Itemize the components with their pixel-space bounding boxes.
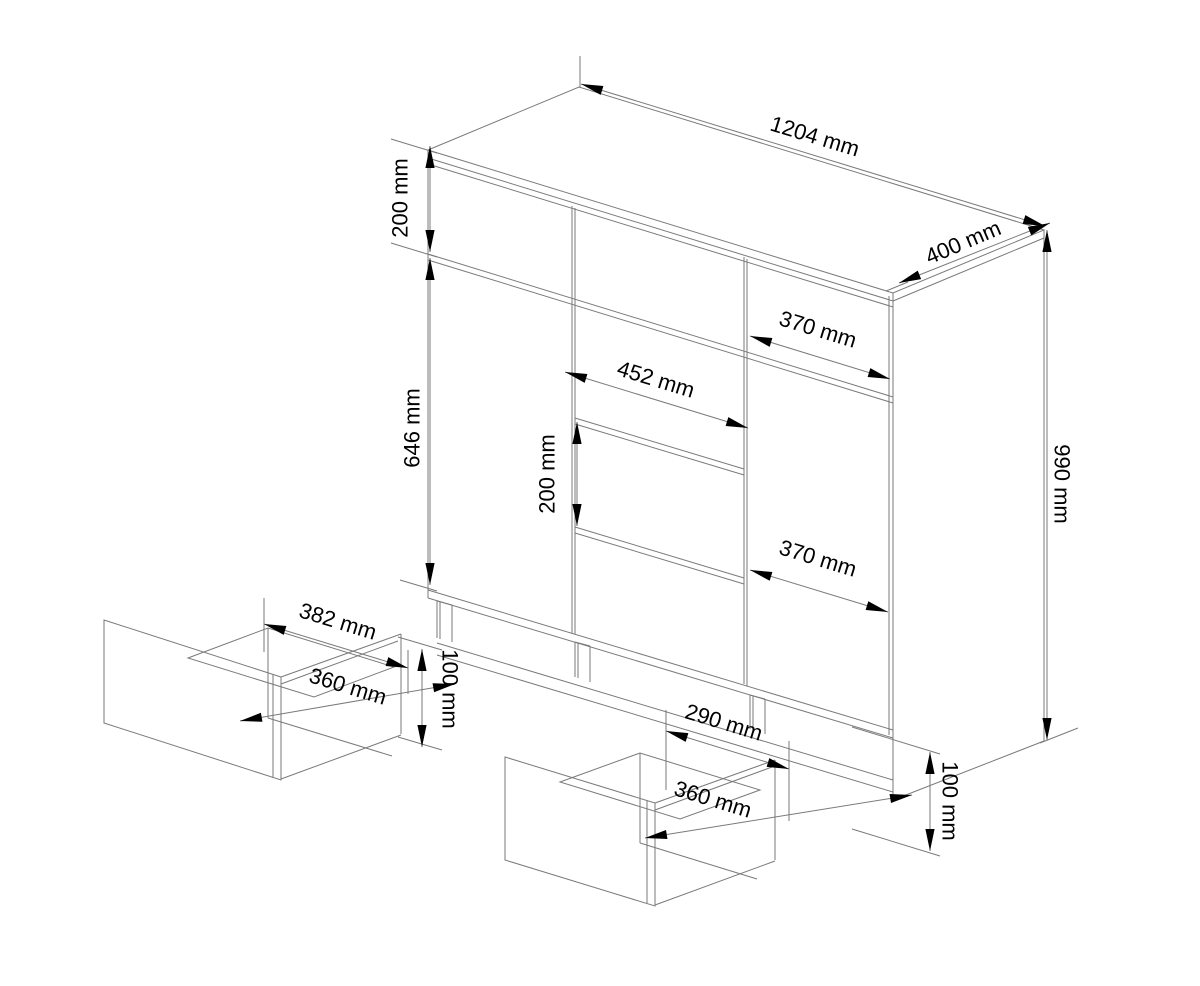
dim-total-height: 990 mm	[1040, 230, 1078, 743]
dim-center-pulled-height-label: 100 mm	[937, 761, 962, 840]
dim-door-height: 646 mm	[400, 258, 437, 591]
dim-left-pulled-height-label: 100 mm	[437, 649, 462, 728]
dim-center-drawer-width: 452 mm	[565, 356, 748, 428]
dim-center-drawer-height-label: 200 mm	[535, 434, 560, 513]
front-left-leg	[437, 601, 452, 642]
drawer-front-panel	[505, 757, 655, 906]
dim-right-lower-width: 370 mm	[750, 535, 888, 612]
dim-right-upper-width: 370 mm	[750, 306, 890, 379]
dim-left-pulled-front-width: 360 mm	[240, 663, 455, 721]
dim-center-drawer-height: 200 mm	[535, 422, 577, 526]
dim-right-upper-width-label: 370 mm	[776, 306, 859, 353]
dim-top-drawer-height-label: 200 mm	[388, 158, 413, 237]
dim-door-height-label: 646 mm	[400, 388, 425, 467]
fronts-top-edge	[428, 164, 893, 307]
drawer-front-panel	[104, 620, 281, 780]
left-divider	[572, 206, 575, 634]
center-left-leg	[575, 642, 590, 682]
cabinet-body	[428, 56, 1044, 800]
side-bottom-edge	[893, 741, 1044, 800]
dim-center-pulled-front-width: 360 mm	[645, 776, 912, 838]
dim-center-drawer-width-label: 452 mm	[614, 356, 697, 403]
fronts-bottom-band	[428, 590, 893, 738]
technical-drawing-page: 1204 mm 400 mm 990 mm 200 mm 646 mm 452 …	[0, 0, 1200, 986]
dim-top-drawer-height: 200 mm	[388, 139, 437, 257]
dim-total-height-label: 990 mm	[1049, 444, 1074, 523]
pulled-drawer-center	[505, 753, 775, 906]
dim-right-lower-width-label: 370 mm	[776, 535, 859, 582]
dim-total-width-label: 1204 mm	[767, 111, 862, 162]
drawer-side-wall	[655, 760, 775, 905]
furniture-dimension-drawing: 1204 mm 400 mm 990 mm 200 mm 646 mm 452 …	[0, 0, 1200, 986]
dim-total-depth: 400 mm	[886, 215, 1050, 291]
dim-total-width: 1204 mm	[581, 84, 1045, 226]
dim-center-pulled-height: 100 mm	[852, 727, 962, 856]
right-divider	[744, 257, 747, 686]
dim-total-depth-label: 400 mm	[922, 215, 1005, 269]
center-groove-2	[575, 527, 744, 584]
center-groove-1	[575, 418, 744, 475]
top-slab-front-edge	[428, 158, 893, 301]
